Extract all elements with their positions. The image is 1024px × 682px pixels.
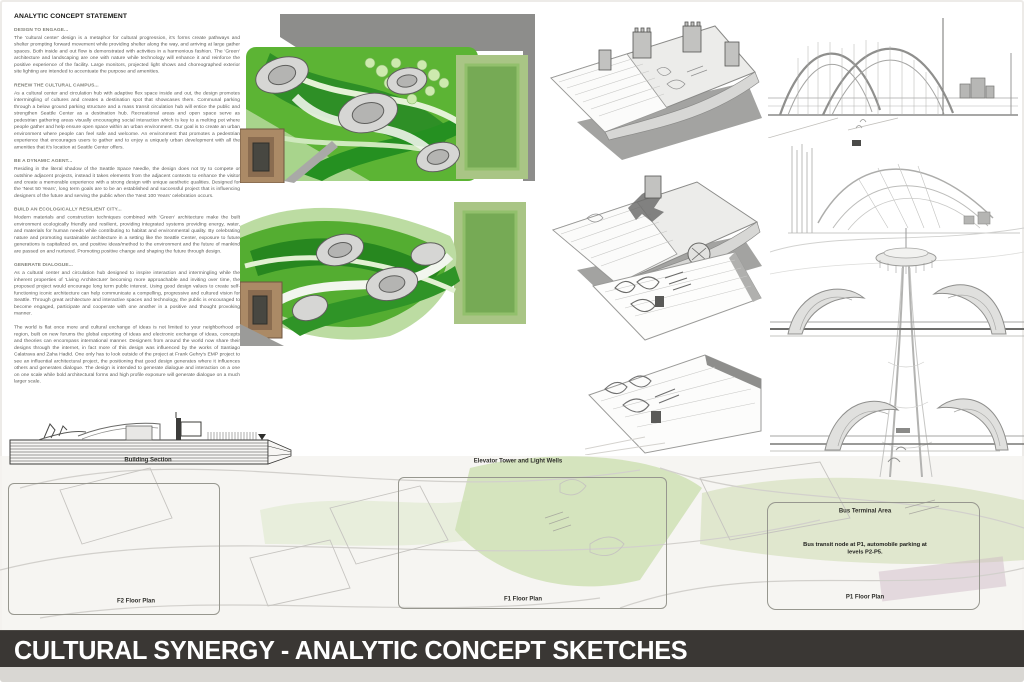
building-section-label: Building Section	[88, 456, 208, 463]
board-title-bar: CULTURAL SYNERGY - ANALYTIC CONCEPT SKET…	[0, 630, 1024, 668]
space-needle-sketch	[770, 222, 1024, 477]
section-body: Residing in the literal shadow of the Se…	[14, 166, 240, 200]
f2-floor-plan-box	[8, 483, 220, 615]
massing-model-view-1	[547, 20, 762, 160]
presentation-board: ANALYTIC CONCEPT STATEMENT DESIGN TO ENG…	[0, 0, 1024, 682]
section-body: As a cultural center and circulation hub…	[14, 270, 240, 317]
statement-title: ANALYTIC CONCEPT STATEMENT	[14, 12, 240, 20]
sketch-plan-view-1	[585, 248, 765, 343]
brown-building	[240, 129, 284, 183]
section-body: As a cultural center and circulation hub…	[14, 90, 240, 151]
section-heading-build-resilient-city: BUILD AN ECOLOGICALLY RESILIENT CITY...	[14, 207, 240, 213]
f1-floor-plan-label: F1 Floor Plan	[463, 595, 583, 602]
section-heading-design-to-engage: DESIGN TO ENGAGE...	[14, 27, 240, 33]
section-heading-be-dynamic-agent: BE A DYNAMIC AGENT...	[14, 158, 240, 164]
section-body: The 'cultural center' design is a metaph…	[14, 35, 240, 75]
f2-floor-plan-label: F2 Floor Plan	[76, 597, 196, 604]
bus-transit-note: Bus transit node at P1, automobile parki…	[795, 541, 935, 556]
bottom-margin-strip	[0, 667, 1024, 682]
section-heading-renew-cultural-campus: RENEW THE CULTURAL CAMPUS...	[14, 82, 240, 88]
p1-floor-plan-label: P1 Floor Plan	[805, 593, 925, 600]
site-plan-render-top	[240, 11, 535, 183]
section-body: Modern materials and construction techni…	[14, 214, 240, 254]
sketch-plan-view-2	[585, 345, 765, 455]
statement-closing-paragraph: The world is flat once more and cultural…	[14, 324, 240, 385]
bridge-sketch	[768, 18, 1018, 138]
site-plan-render-bottom	[240, 196, 535, 346]
elevator-tower-label: Elevator Tower and Light Wells	[458, 457, 578, 464]
f1-floor-plan-box	[398, 477, 667, 609]
section-heading-generate-dialogue: GENERATE DIALOGUE...	[14, 262, 240, 268]
bus-terminal-area-label: Bus Terminal Area	[805, 507, 925, 514]
analytic-concept-statement: ANALYTIC CONCEPT STATEMENT DESIGN TO ENG…	[14, 12, 240, 385]
board-title: CULTURAL SYNERGY - ANALYTIC CONCEPT SKET…	[14, 635, 687, 666]
